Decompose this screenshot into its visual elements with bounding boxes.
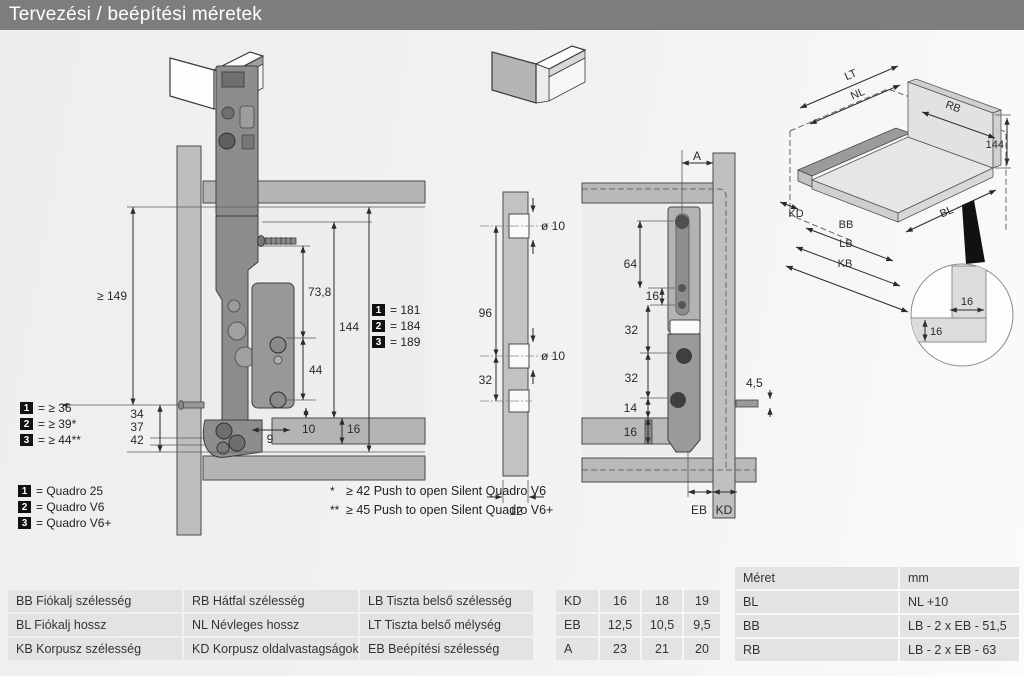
- key-row: 2 = ≥ 39*: [20, 417, 81, 431]
- row-header: RB: [735, 639, 898, 661]
- cabinet-side-panel: [713, 153, 735, 518]
- label-kb: KB: [838, 258, 853, 270]
- dim-42: 42: [130, 433, 144, 447]
- height-key: 1 = 181 2 = 184 3 = 189: [372, 303, 420, 351]
- legend-1-badge: 1: [18, 485, 31, 497]
- legend-item-quadro25: 1 = Quadro 25: [18, 484, 111, 498]
- table-cell: RB Hátfal szélesség: [184, 590, 358, 612]
- dim-dia10-top: ø 10: [541, 219, 565, 233]
- table-cell: LT Tiszta belső mélység: [360, 614, 533, 636]
- dim-73-8: 73,8: [308, 285, 332, 299]
- key-row: 3 = ≥ 44**: [20, 433, 81, 447]
- product-legend: 1 = Quadro 25 2 = Quadro V6 3 = Quadro V…: [18, 484, 111, 532]
- values-table: KD 16 18 19 EB 12,5 10,5 9,5 A 23 21 20: [556, 590, 720, 660]
- footnote: * ≥ 42 Push to open Silent Quadro V6: [330, 484, 553, 498]
- detail-callout: [962, 200, 985, 264]
- label-bb: BB: [839, 219, 854, 231]
- dim-10: 10: [302, 422, 316, 436]
- table-cell: 16: [600, 590, 640, 612]
- dim-4-5: 4,5: [746, 376, 763, 390]
- rear-view-drawing: A 64 16 32 32 14 16 4,5 EB KD: [582, 149, 770, 518]
- table-cell: 23: [600, 638, 640, 660]
- legend-item-quadrov6plus: 3 = Quadro V6+: [18, 516, 111, 530]
- dim-9: 9: [267, 432, 274, 446]
- table-cell: 19: [684, 590, 720, 612]
- dim-14: 14: [624, 401, 638, 415]
- dim-a: A: [693, 149, 701, 163]
- footnotes: * ≥ 42 Push to open Silent Quadro V6 ** …: [330, 484, 553, 522]
- legend-2-badge: 2: [18, 501, 31, 513]
- table-cell: LB - 2 x EB - 63: [900, 639, 1019, 661]
- dim-37: 37: [130, 420, 144, 434]
- row-header: BB: [735, 615, 898, 637]
- footnote: ** ≥ 45 Push to open Silent Quadro V6+: [330, 503, 553, 517]
- label-bl: BL: [938, 204, 955, 220]
- dim-44: 44: [309, 363, 323, 377]
- front-gap-key: 1 = ≥ 36 2 = ≥ 39* 3 = ≥ 44**: [20, 401, 81, 449]
- dim-96: 96: [479, 306, 493, 320]
- label-kd-iso: KD: [788, 208, 803, 220]
- label-lb: LB: [839, 238, 852, 250]
- table-cell: 9,5: [684, 614, 720, 636]
- legend-item-quadrov6: 2 = Quadro V6: [18, 500, 111, 514]
- key-1-badge: 1: [372, 304, 385, 316]
- label-kd: KD: [716, 503, 733, 517]
- key-row: 2 = 184: [372, 319, 420, 333]
- bore-view-drawing: ø 10 ø 10 96 32 12: [479, 192, 566, 518]
- dim-16-rear: 16: [646, 289, 660, 303]
- dim-34: 34: [130, 407, 144, 421]
- dim-64: 64: [624, 257, 638, 271]
- iso-view-drawing: LT NL RB 144 KD BB LB KB BL 16 16: [780, 66, 1013, 366]
- abbreviation-table: BB Fiókalj szélesség RB Hátfal szélesség…: [8, 590, 533, 660]
- dim-144-iso: 144: [986, 139, 1004, 151]
- detail-dim-16a: 16: [961, 296, 973, 308]
- key-row: 3 = 189: [372, 335, 420, 349]
- dim-dia10-mid: ø 10: [541, 349, 565, 363]
- table-cell: BB Fiókalj szélesség: [8, 590, 182, 612]
- table-cell: 12,5: [600, 614, 640, 636]
- legend-3-badge: 3: [18, 517, 31, 529]
- dim-144: 144: [339, 320, 359, 334]
- title-bar: Tervezési / beépítési méretek: [0, 0, 1024, 30]
- page-title: Tervezési / beépítési méretek: [0, 4, 262, 26]
- key-3-badge: 3: [20, 434, 33, 446]
- row-header: A: [556, 638, 598, 660]
- label-lt: LT: [843, 67, 859, 83]
- side-view-drawing: ≥ 149 34 37 42 73,8 144 44 9 10 16: [62, 66, 425, 535]
- dim-16b: 16: [624, 425, 638, 439]
- column-header: mm: [900, 567, 1019, 589]
- table-cell: 10,5: [642, 614, 682, 636]
- row-header: KD: [556, 590, 598, 612]
- page: Tervezési / beépítési méretek: [0, 0, 1024, 676]
- table-cell: NL Névleges hossz: [184, 614, 358, 636]
- row-header: EB: [556, 614, 598, 636]
- table-cell: EB Beépítési szélesség: [360, 638, 533, 660]
- drawer-front-panel-icon: [492, 46, 585, 103]
- table-cell: LB - 2 x EB - 51,5: [900, 615, 1019, 637]
- label-eb: EB: [691, 503, 707, 517]
- key-1-badge: 1: [20, 402, 33, 414]
- detail-dim-16b: 16: [930, 326, 942, 338]
- key-2-badge: 2: [20, 418, 33, 430]
- table-cell: KD Korpusz oldalvastagságok: [184, 638, 358, 660]
- table-cell: 21: [642, 638, 682, 660]
- key-row: 1 = ≥ 36: [20, 401, 81, 415]
- dim-depth-min: ≥ 149: [97, 289, 127, 303]
- table-cell: NL +10: [900, 591, 1019, 613]
- key-3-badge: 3: [372, 336, 385, 348]
- dim-32a: 32: [625, 323, 639, 337]
- dim-16: 16: [347, 422, 361, 436]
- label-nl: NL: [849, 86, 867, 103]
- table-cell: KB Korpusz szélesség: [8, 638, 182, 660]
- key-row: 1 = 181: [372, 303, 420, 317]
- table-cell: LB Tiszta belső szélesség: [360, 590, 533, 612]
- table-cell: BL Fiókalj hossz: [8, 614, 182, 636]
- table-cell: 18: [642, 590, 682, 612]
- row-header: BL: [735, 591, 898, 613]
- table-cell: 20: [684, 638, 720, 660]
- column-header: Méret: [735, 567, 898, 589]
- dim-32: 32: [479, 373, 493, 387]
- cabinet-front-panel: [177, 146, 201, 535]
- formulas-table: Méret mm BL NL +10 BB LB - 2 x EB - 51,5…: [735, 567, 1019, 661]
- key-2-badge: 2: [372, 320, 385, 332]
- dim-32b: 32: [625, 371, 639, 385]
